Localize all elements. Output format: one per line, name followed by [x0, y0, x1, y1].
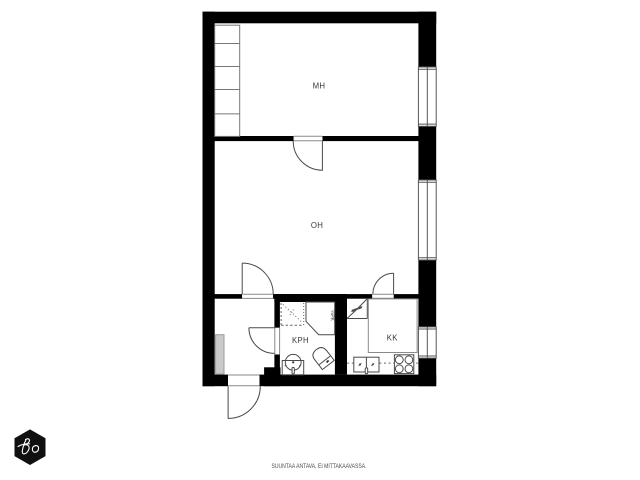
svg-text:MH: MH: [313, 81, 326, 90]
svg-text:¼PK: ¼PK: [329, 310, 335, 322]
svg-text:KK: KK: [387, 334, 399, 343]
svg-text:OH: OH: [311, 221, 323, 230]
svg-text:KPH: KPH: [292, 336, 309, 345]
svg-text:SUUNTAA ANTAVA, EI MITTAKAAVAS: SUUNTAA ANTAVA, EI MITTAKAAVASSA.: [272, 463, 367, 470]
